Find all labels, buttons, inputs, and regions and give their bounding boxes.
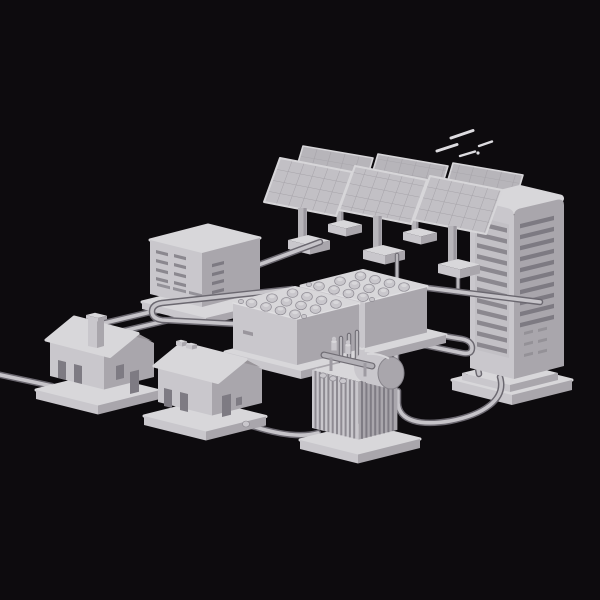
window — [58, 360, 66, 380]
window — [236, 397, 242, 407]
pipe-solar-to-inverter — [253, 242, 320, 267]
spark-icon — [460, 152, 475, 157]
spark-icon — [476, 151, 479, 154]
bushing — [359, 344, 364, 358]
bushing — [331, 337, 336, 351]
spark-icon — [451, 131, 473, 139]
door — [222, 394, 231, 417]
scene-canvas — [0, 0, 600, 600]
bushing — [345, 340, 350, 354]
chimney — [86, 313, 107, 348]
window — [180, 392, 188, 412]
window — [116, 364, 124, 380]
spark-icon — [479, 142, 492, 147]
door — [130, 370, 139, 394]
pipe-fitting — [243, 421, 250, 427]
spark-icons — [437, 131, 492, 157]
microgrid-render — [0, 0, 600, 600]
spark-icon — [437, 145, 457, 152]
pipe-stub-left — [0, 374, 52, 386]
window — [74, 364, 82, 384]
window — [164, 388, 172, 408]
